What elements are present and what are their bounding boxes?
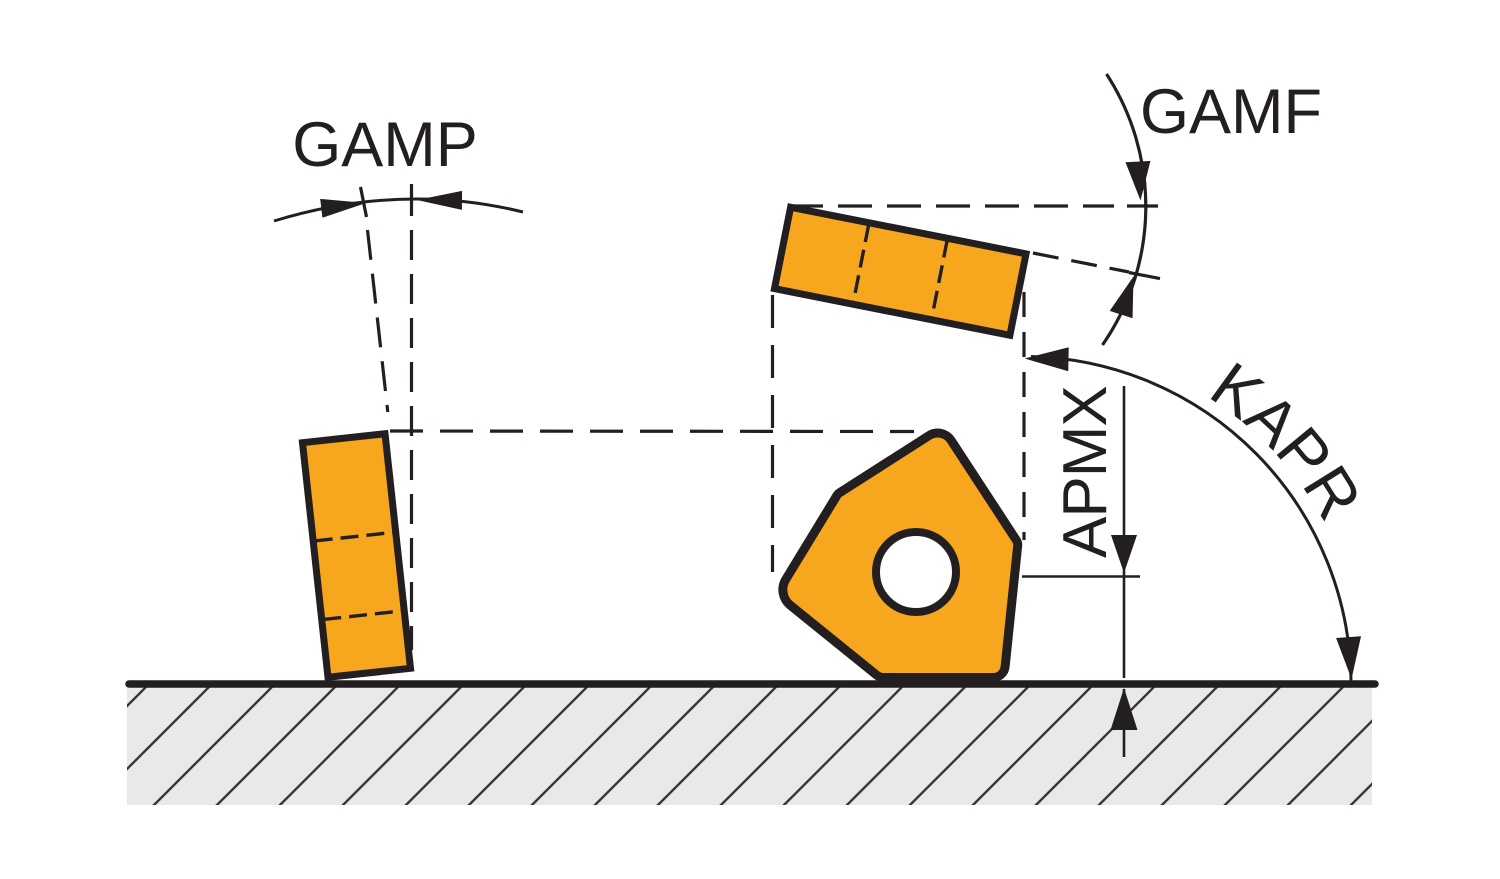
svg-text:GAMP: GAMP [292, 110, 478, 180]
svg-text:KAPR: KAPR [1198, 348, 1376, 532]
svg-text:APMX: APMX [1051, 386, 1120, 558]
svg-text:GAMF: GAMF [1140, 77, 1322, 147]
